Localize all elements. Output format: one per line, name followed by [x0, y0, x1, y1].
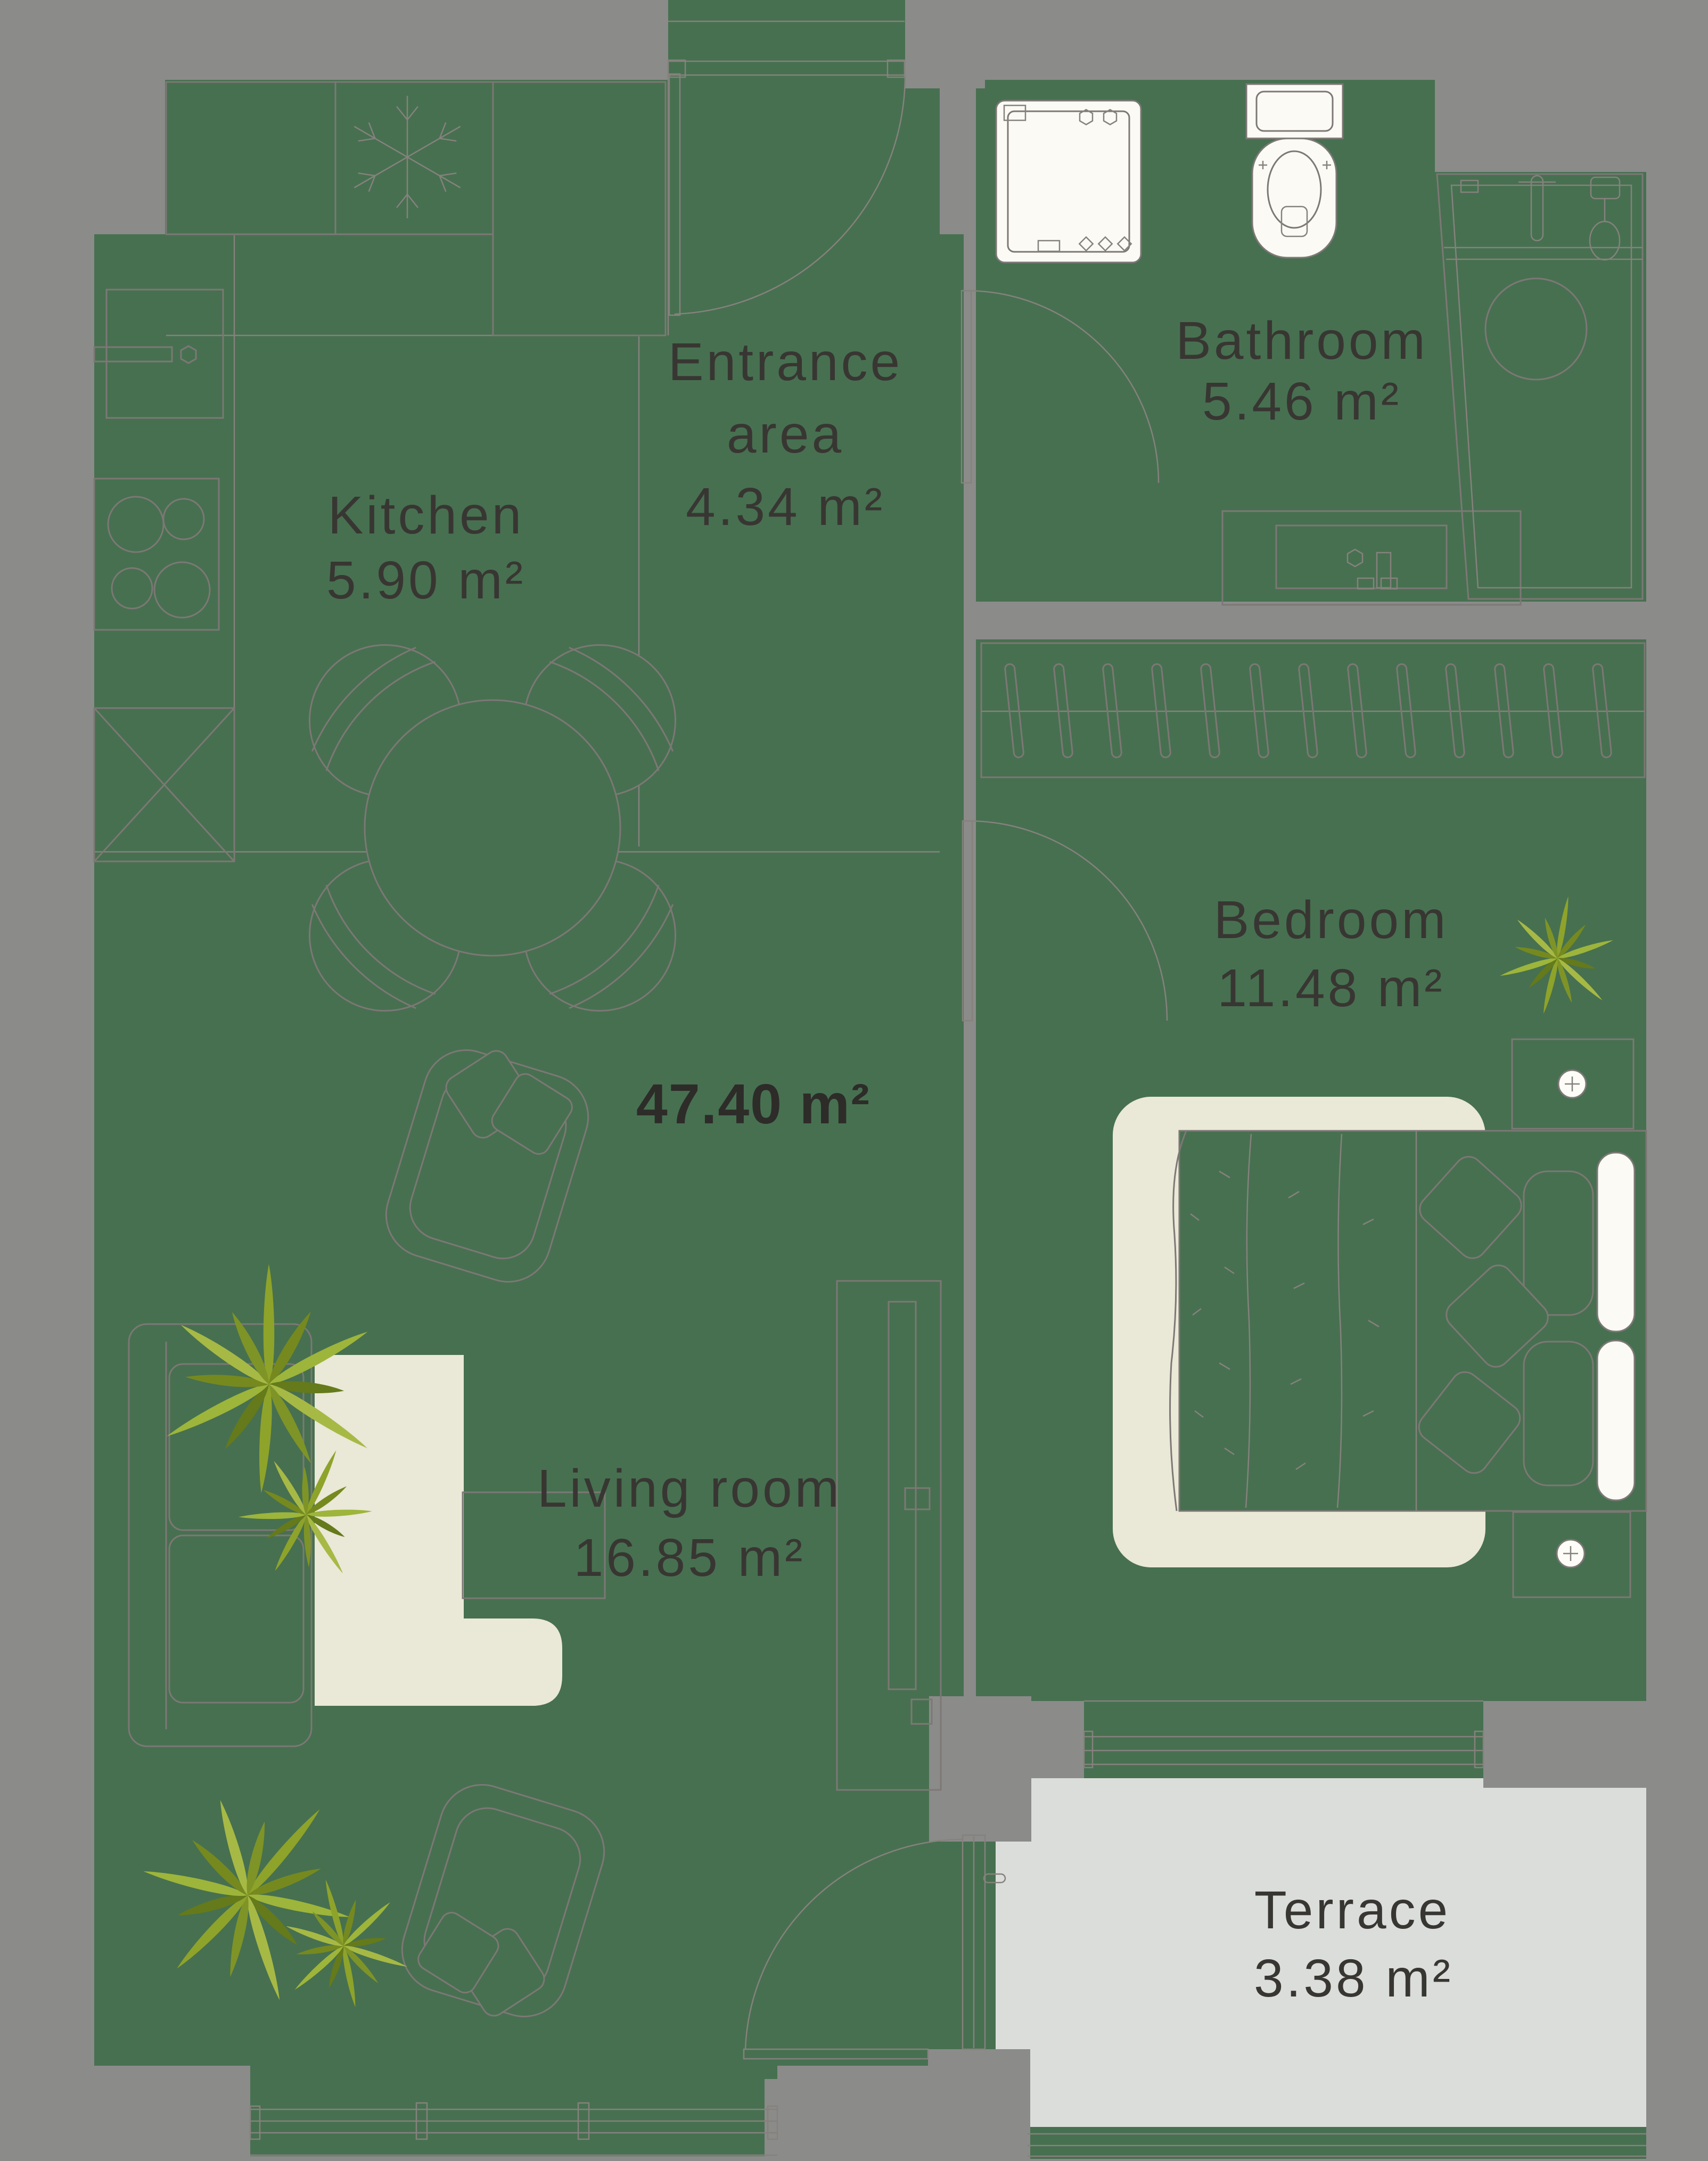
terrace-railing-band: [1028, 2127, 1646, 2159]
living-room-label: Living room: [537, 1459, 842, 1518]
bedroom-window-band: [1084, 1701, 1483, 1778]
entrance-label-line1: Entrance: [668, 332, 902, 392]
washing-machine: [996, 101, 1141, 262]
kitchen-label: Kitchen: [328, 486, 524, 545]
flower-icon: [1557, 1540, 1584, 1567]
terrace-area: 3.38 m²: [1254, 1949, 1453, 2008]
bathroom-label: Bathroom: [1176, 311, 1428, 371]
bathroom-area: 5.46 m²: [1202, 372, 1401, 431]
dining-table: [365, 700, 620, 956]
wall-block: [928, 2049, 1030, 2161]
living-room-area: 16.85 m²: [574, 1528, 806, 1588]
living-window-bay: [250, 2066, 777, 2156]
shower-alcove-floor: [1435, 172, 1646, 602]
terrace-door-strip: [964, 1835, 996, 2049]
kitchen-area: 5.90 m²: [326, 550, 525, 610]
wall-block: [929, 1696, 1031, 1842]
wall-block: [905, 73, 985, 88]
entrance-label-line2: area: [727, 405, 844, 464]
entrance-floor: [669, 75, 940, 240]
wall-pier: [1483, 1701, 1646, 1788]
wall-block: [765, 2079, 930, 2161]
bedroom-label: Bedroom: [1214, 890, 1449, 950]
total-area-label: 47.40 m²: [636, 1073, 871, 1136]
bedroom-area: 11.48 m²: [1217, 958, 1444, 1018]
entrance-area: 4.34 m²: [686, 477, 885, 537]
floor-plan-canvas: Kitchen 5.90 m² Entrance area 4.34 m² Ba…: [0, 0, 1708, 2161]
bolster-pillow: [1597, 1341, 1635, 1500]
double-bed: [1170, 1131, 1646, 1511]
bolster-pillow: [1597, 1153, 1635, 1332]
flower-icon: [1558, 1070, 1586, 1098]
toilet: [1246, 84, 1343, 258]
terrace-label: Terrace: [1254, 1880, 1450, 1940]
entry-threshold-floor: [668, 0, 905, 77]
